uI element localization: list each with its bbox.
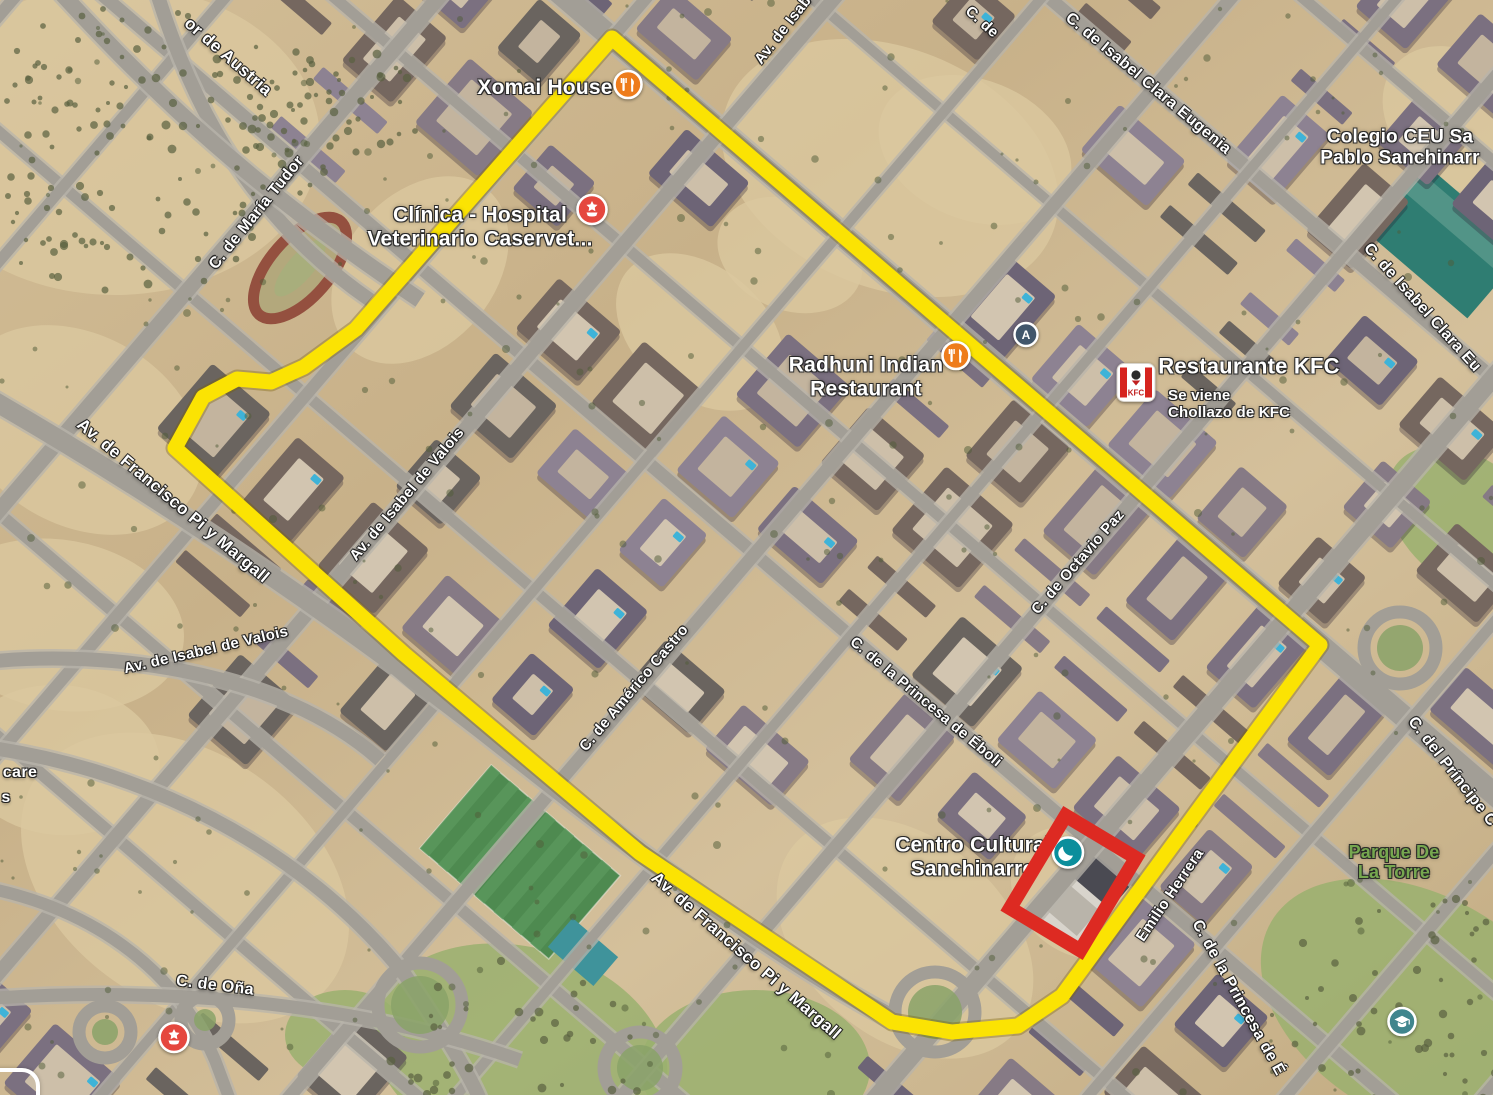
svg-text:A: A [1022,328,1031,342]
street-label-isabel-valois-out: Av. de Isabel de Valois [122,623,290,677]
red-highlight-layer [0,0,1493,1095]
street-label-care-fragment: care [3,764,38,782]
poi-label-line: Pablo Sanchinarr [1320,148,1479,169]
street-label-francisco-pi-bottom: Av. de Francisco Pi y Margall [647,868,845,1044]
school-marker[interactable] [1385,1005,1419,1044]
street-label-princesa-eboli: C. de la Princesa de Éboli [847,633,1006,770]
poi-label-line: Clínica - Hospital [367,203,592,227]
centro-cultural-marker[interactable] [1050,835,1086,876]
poi-label-line: Chollazo de KFC [1168,405,1290,422]
poi-label-parque-torre[interactable]: Parque DeLa Torre [1349,842,1440,882]
kfc-stripe [1145,368,1152,398]
street-label-ona: C. de Oña [175,972,255,999]
poi-label-line: Se viene [1168,388,1290,405]
poi-label-xomai-house[interactable]: Xomai House [477,76,612,100]
poi-label-line: Centro Cultural [895,833,1051,857]
street-label-austria: or de Austria [180,14,276,101]
street-label-principe: C. del Príncipe C [1404,714,1493,831]
street-label-isab-top-partial: Av. de Isab [751,0,815,68]
poi-label-line: Colegio CEU Sa [1320,127,1479,148]
street-label-isabel-valois-in: Av. de Isabel de Valois [346,424,467,564]
street-label-octavio-paz: C. de Octavio Paz [1028,506,1128,617]
poi-label-colegio-ceu[interactable]: Colegio CEU SaPablo Sanchinarr [1320,127,1479,170]
street-label-emilio-herrera: Emilio Herrera [1133,845,1208,944]
poi-label-kfc-title[interactable]: Restaurante KFC [1158,355,1339,380]
colonel-icon [1131,370,1140,379]
kfc-logo[interactable]: KFC [1116,363,1156,408]
map-control-fragment [0,1068,40,1095]
highlighted-area-outline [175,38,1320,1032]
poi-label-line: La Torre [1349,862,1440,882]
svg-text:KFC: KFC [1128,389,1145,398]
poi-label-line: Radhuni Indian [789,353,943,377]
street-label-isabel-clara-top: C. de Isabel Clara Eugenia [1062,9,1235,158]
radhuni-marker[interactable] [939,339,973,378]
street-label-c-de-top-partial: C. de [962,3,1002,42]
poi-label-kfc-subtitle[interactable]: Se vieneChollazo de KFC [1168,388,1290,422]
poi-label-radhuni[interactable]: Radhuni IndianRestaurant [789,353,943,400]
highlight-polygon-layer [0,0,1493,1095]
poi-label-vet-clinic[interactable]: Clínica - HospitalVeterinario Caservet..… [367,203,592,250]
street-label-s-fragment: s [1,789,10,807]
transit-a-marker[interactable]: A [1011,320,1041,355]
vet-marker[interactable] [574,192,610,233]
star-marker-southwest[interactable] [156,1020,192,1061]
poi-label-line: Veterinario Caservet... [367,227,592,251]
poi-label-line: Sanchinarro [895,857,1051,881]
street-label-isabel-clara-right: C. de Isabel Clara Eu [1360,240,1485,376]
markers-layer: KFC A [0,0,1493,1095]
xomai-marker[interactable] [611,68,645,107]
poi-label-line: Restaurante KFC [1158,355,1339,380]
poi-label-centro-cultural[interactable]: Centro CulturalSanchinarro [895,833,1051,880]
kfc-stripe [1120,368,1127,398]
street-label-maria-tudor: C. de María Tudor [206,153,309,274]
satellite-base-layer [0,0,1493,1095]
street-label-princesa-eboli-se: C. de la Princesa de É [1188,917,1289,1079]
poi-label-line: Xomai House [477,76,612,100]
street-label-francisco-pi-left: Av. de Francisco Pi y Margall [73,415,274,588]
map-canvas[interactable]: or de AustriaC. de María TudorAv. de Fra… [0,0,1493,1095]
poi-label-line: Restaurant [789,377,943,401]
labels-layer: or de AustriaC. de María TudorAv. de Fra… [0,0,1493,1095]
street-label-americo-castro: C. de Américo Castro [576,621,692,754]
poi-label-line: Parque De [1349,842,1440,862]
